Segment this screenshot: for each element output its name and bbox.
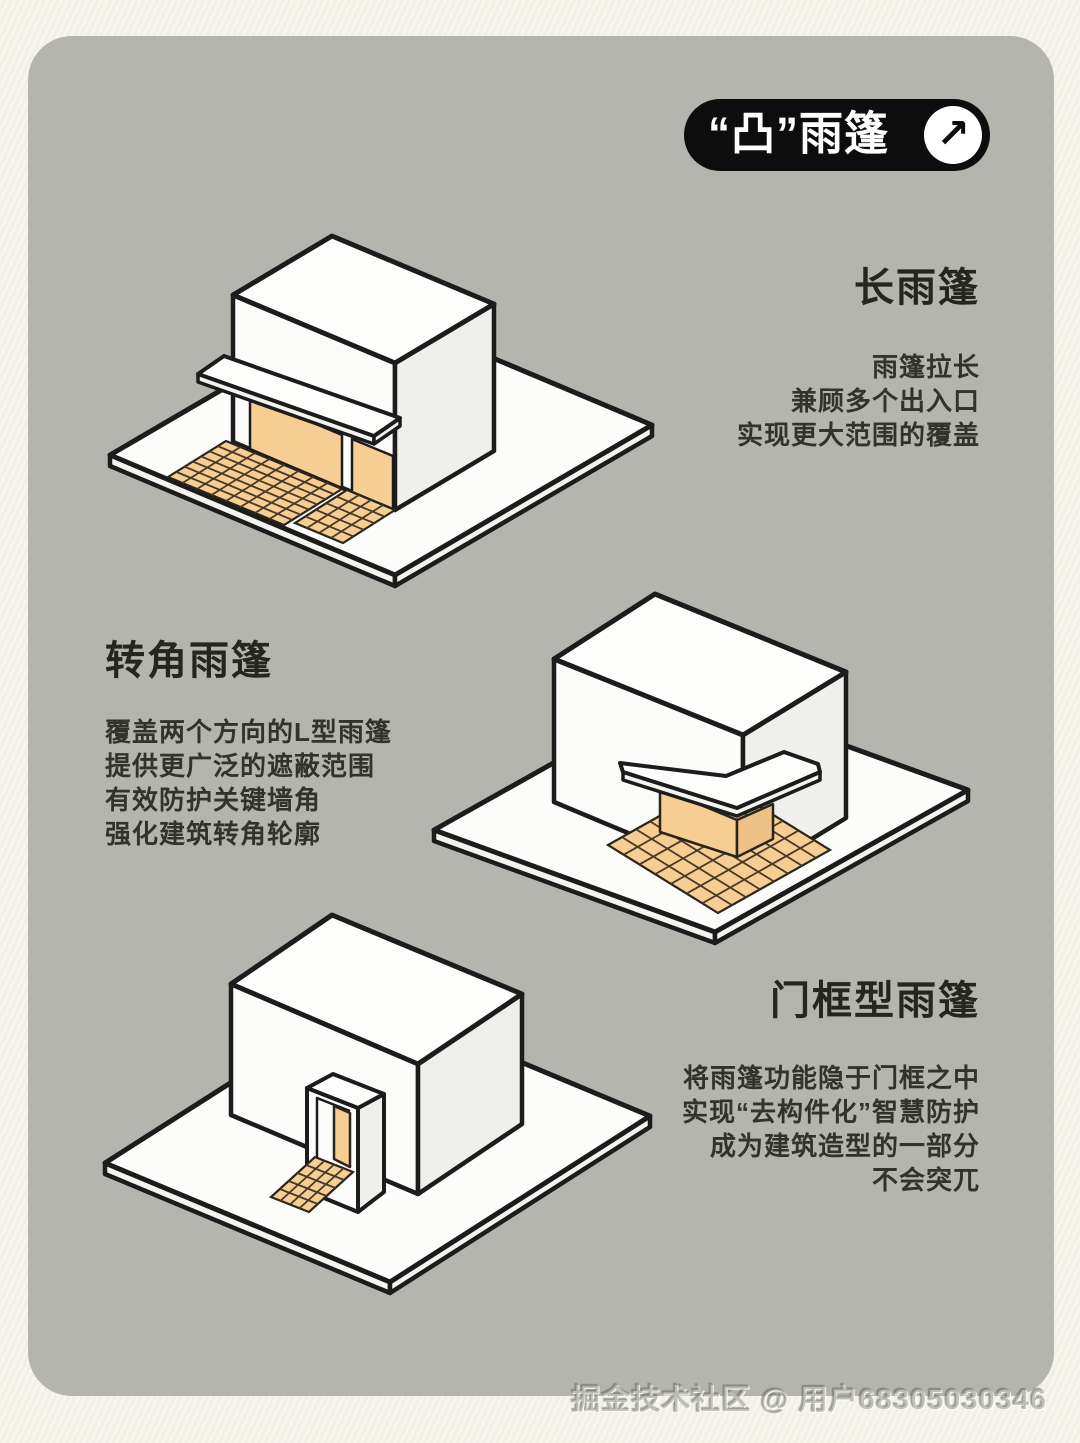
section-line: 强化建筑转角轮廓 — [105, 817, 392, 851]
section-line: 有效防护关键墙角 — [105, 783, 392, 817]
section-line: 实现更大范围的覆盖 — [737, 418, 980, 452]
section-long-canopy: 长雨篷 雨篷拉长 兼顾多个出入口 实现更大范围的覆盖 — [737, 264, 980, 452]
section-line: 兼顾多个出入口 — [737, 384, 980, 418]
section-title: 门框型雨篷 — [682, 977, 980, 1025]
section-title: 转角雨篷 — [105, 637, 392, 685]
title-badge[interactable]: “凸”雨篷 ↗ — [684, 99, 990, 171]
section-line: 覆盖两个方向的L型雨篷 — [105, 715, 392, 749]
illustration-corner-canopy — [420, 580, 980, 965]
section-line: 实现“去构件化”智慧防护 — [682, 1095, 980, 1129]
section-line: 成为建筑造型的一部分 — [682, 1129, 980, 1163]
watermark: 掘金技术社区 @ 用户68305030346 — [571, 1376, 1047, 1418]
section-line: 不会突兀 — [682, 1163, 980, 1197]
section-title: 长雨篷 — [737, 264, 980, 312]
badge-label: “凸”雨篷 — [708, 112, 889, 158]
arrow-circle: ↗ — [924, 106, 982, 164]
illustration-long-canopy — [100, 220, 660, 605]
section-line: 将雨篷功能隐于门框之中 — [682, 1061, 980, 1095]
illustration-doorframe-canopy — [90, 910, 665, 1305]
section-corner-canopy: 转角雨篷 覆盖两个方向的L型雨篷 提供更广泛的遮蔽范围 有效防护关键墙角 强化建… — [105, 637, 392, 851]
section-doorframe-canopy: 门框型雨篷 将雨篷功能隐于门框之中 实现“去构件化”智慧防护 成为建筑造型的一部… — [682, 977, 980, 1197]
arrow-up-right-icon: ↗ — [936, 114, 970, 154]
section-line: 提供更广泛的遮蔽范围 — [105, 749, 392, 783]
section-line: 雨篷拉长 — [737, 350, 980, 384]
